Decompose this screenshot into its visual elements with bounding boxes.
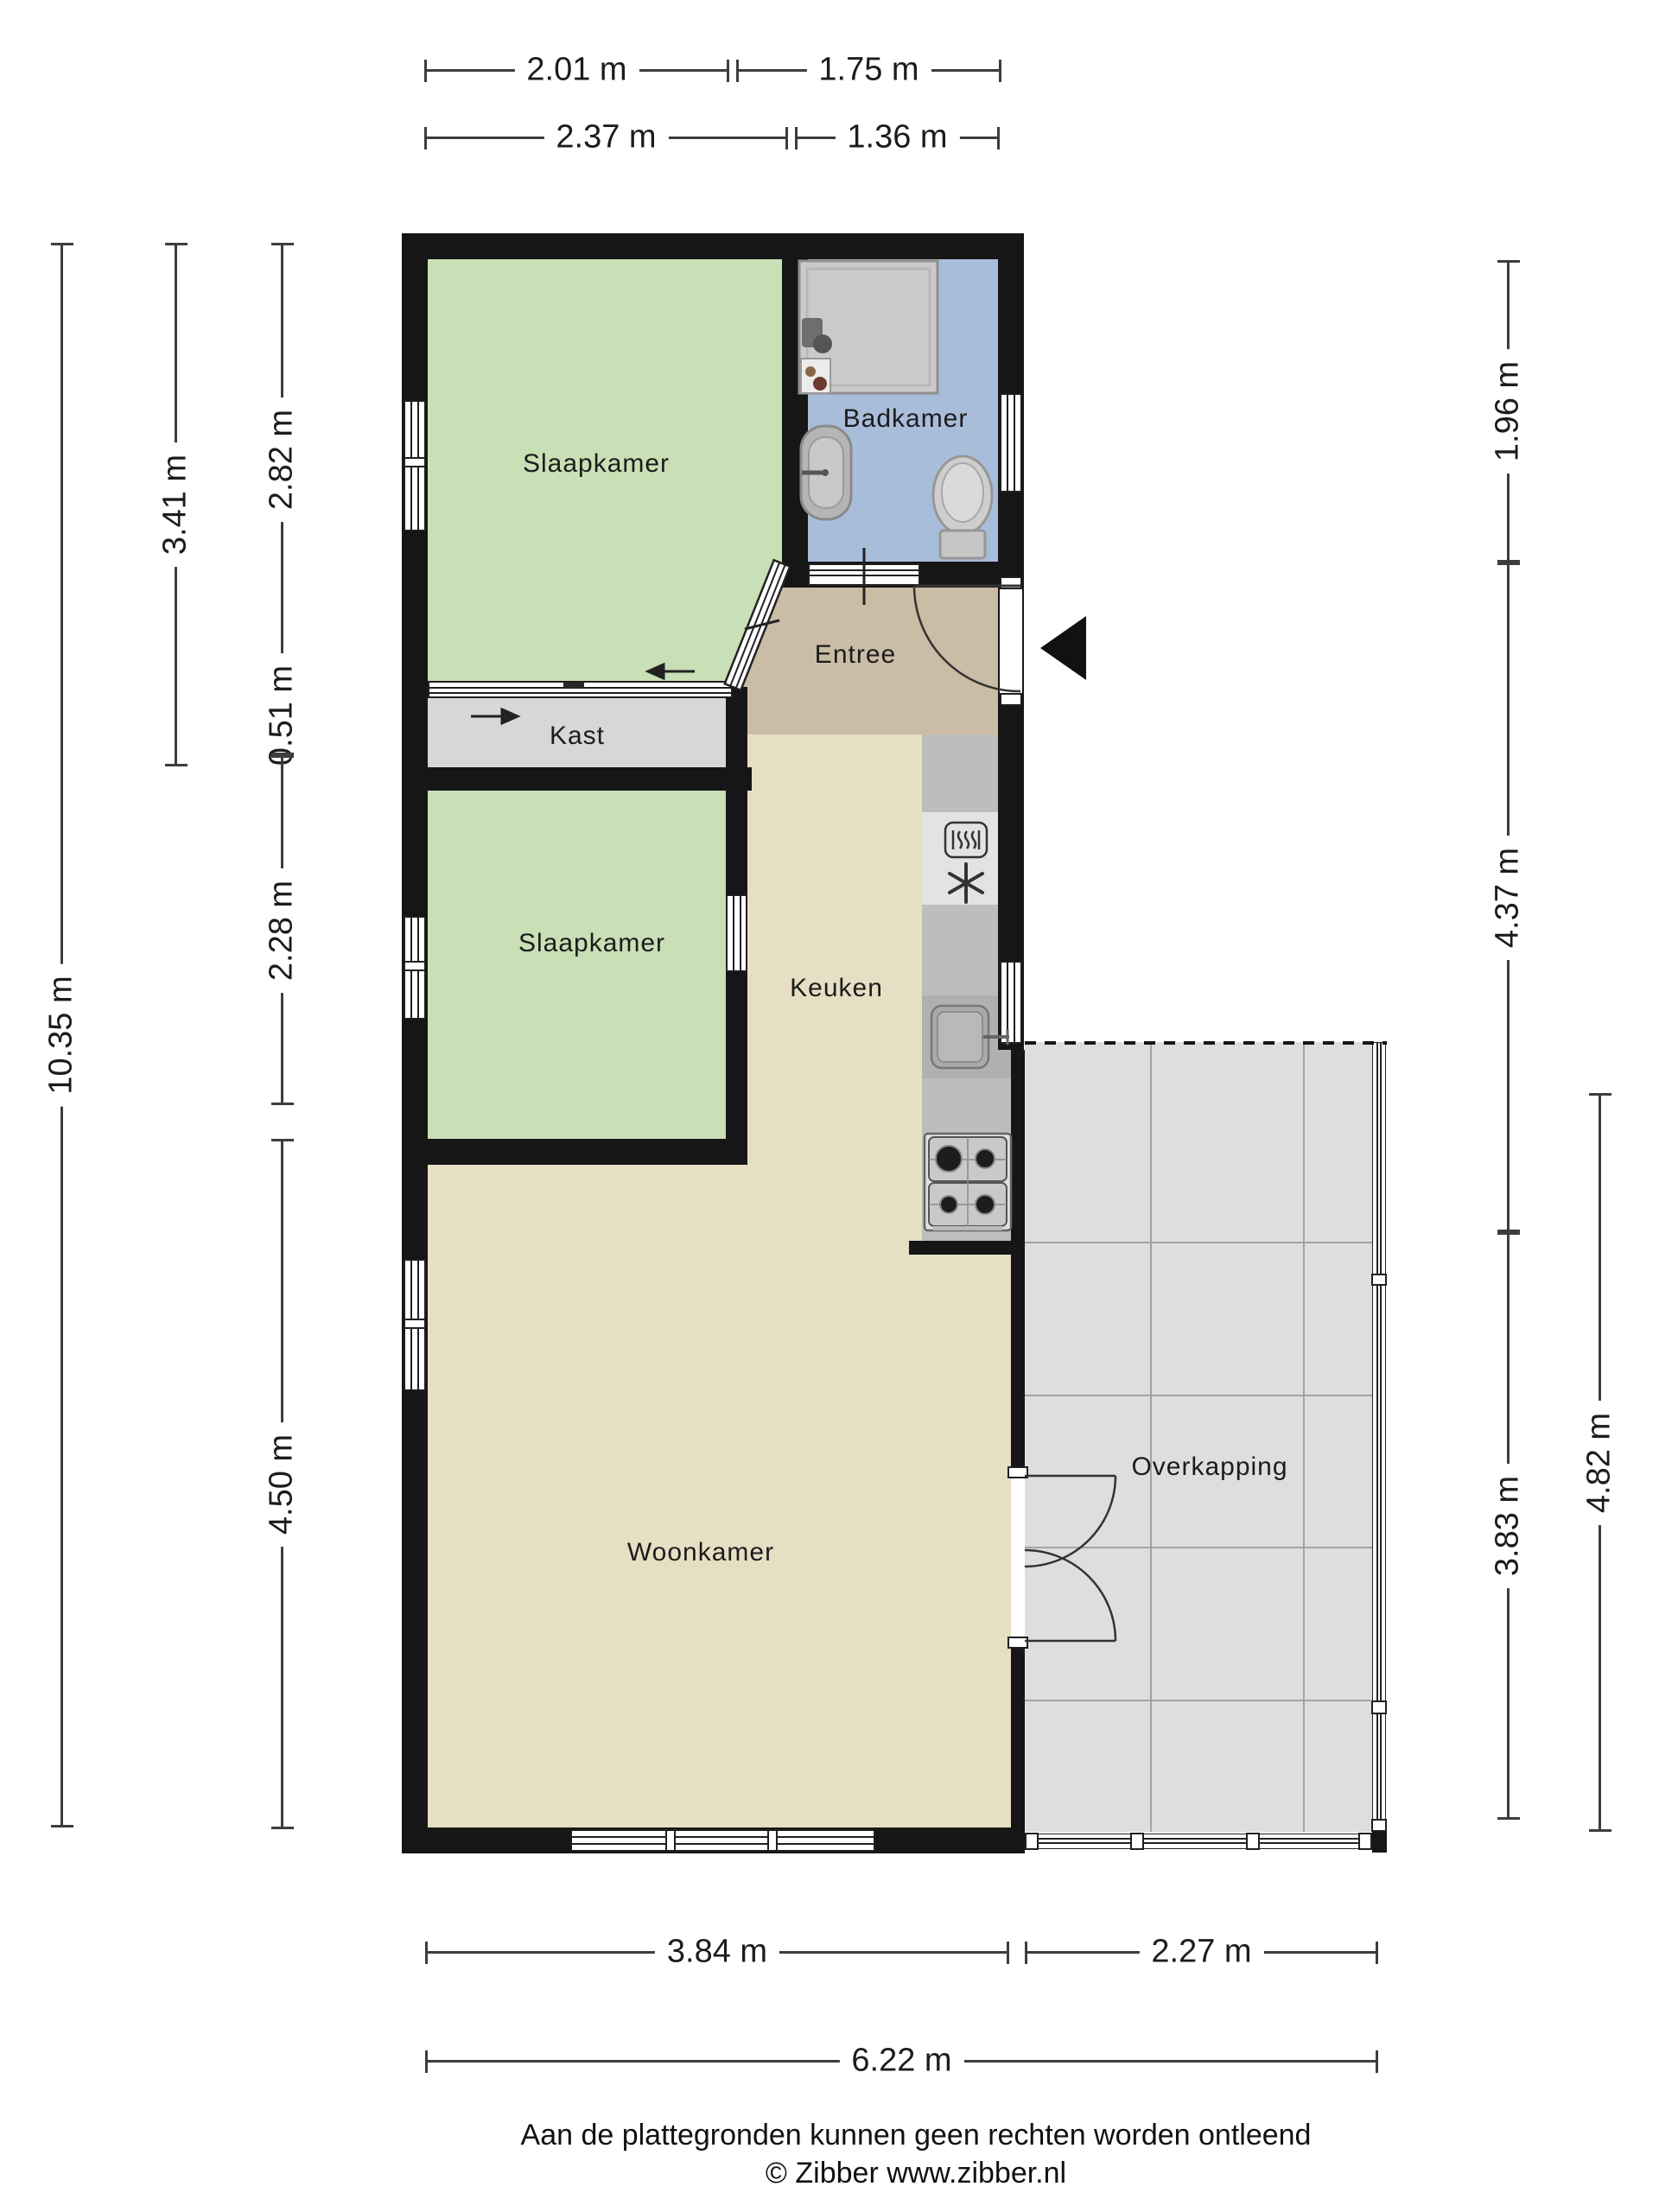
window-mullion (405, 961, 424, 971)
dimension-top-2b: 1.36 m (796, 137, 999, 139)
door-slaapkamer-2 (726, 894, 747, 972)
door-post (1000, 576, 1022, 589)
wall-right-lower (1011, 1050, 1025, 1853)
room-label-woonkamer: Woonkamer (627, 1538, 774, 1567)
window-slaapkamer-1 (404, 400, 426, 531)
door-double-opening (1011, 1466, 1025, 1649)
dimension-left-total: 10.35 m (60, 244, 63, 1827)
wall-kast-bottom (402, 767, 752, 791)
window-keuken (1000, 961, 1022, 1044)
disclaimer-text: Aan de plattegronden kunnen geen rechten… (173, 2119, 1659, 2152)
room-label-slaapkamer-1: Slaapkamer (523, 449, 670, 479)
wall-bed1-bath (782, 233, 808, 562)
dimension-left-228: 2.28 m (281, 756, 283, 1104)
window-woonkamer-bottom (570, 1829, 875, 1852)
room-woonkamer (428, 1165, 1011, 1827)
canopy-glass-divider (1371, 1819, 1387, 1832)
window-mullion (767, 1831, 778, 1850)
dimension-left-450: 4.50 m (281, 1140, 283, 1828)
window-badkamer (1000, 393, 1022, 493)
window-slaapkamer-2 (404, 916, 426, 1020)
dimension-left-341: 3.41 m (175, 244, 177, 766)
room-label-keuken: Keuken (790, 974, 883, 1003)
door-post (1000, 693, 1022, 706)
room-label-overkapping: Overkapping (1131, 1452, 1287, 1482)
dimension-bottom-1b: 2.27 m (1026, 1951, 1377, 1954)
wall-kitchen-stub (909, 1241, 1024, 1255)
dimension-right-196: 1.96 m (1507, 261, 1510, 562)
dimension-top-2a: 2.37 m (425, 137, 787, 139)
window-mullion (405, 1319, 424, 1329)
entrance-arrow-icon (1040, 616, 1086, 680)
copyright-text: © Zibber www.zibber.nl (173, 2157, 1659, 2190)
room-label-entree: Entree (815, 640, 896, 670)
dimension-left-051: 0.51 m (281, 677, 283, 754)
door-post (1007, 1466, 1028, 1478)
wall-top (402, 233, 1024, 259)
canopy-glass-divider (1358, 1833, 1372, 1850)
floor-plan-page: Slaapkamer Badkamer Entree Kast Slaapkam… (0, 0, 1659, 2212)
room-label-badkamer: Badkamer (843, 404, 969, 434)
wall-bed2-bottom (402, 1139, 747, 1165)
room-label-slaapkamer-2: Slaapkamer (518, 929, 665, 958)
canopy-glass-divider (1246, 1833, 1260, 1850)
canopy-corner-bottom-right (1372, 1832, 1387, 1853)
sliding-door-badkamer (808, 563, 920, 586)
window-woonkamer-left (404, 1259, 426, 1391)
sliding-door-handle (563, 683, 584, 688)
canopy-glass-divider (1371, 1274, 1387, 1286)
room-slaapkamer-2 (428, 791, 726, 1139)
canopy-glass-divider (1130, 1833, 1144, 1850)
canopy-glass-divider (1025, 1833, 1039, 1850)
dimension-right-437: 4.37 m (1507, 563, 1510, 1231)
window-mullion (665, 1831, 676, 1850)
door-entree-opening (1000, 576, 1022, 706)
dimension-left-282: 2.82 m (281, 244, 283, 675)
dimension-bottom-1a: 3.84 m (426, 1951, 1008, 1954)
door-post (1007, 1637, 1028, 1649)
room-overkapping (1025, 1042, 1372, 1832)
dimension-right-383: 3.83 m (1507, 1233, 1510, 1819)
window-mullion (405, 457, 424, 467)
canopy-glass-divider (1371, 1700, 1387, 1714)
dimension-bottom-total: 6.22 m (426, 2060, 1377, 2063)
dimension-right-482: 4.82 m (1599, 1094, 1601, 1831)
dimension-top-1b: 1.75 m (737, 69, 1001, 72)
canopy-glass-bottom (1025, 1834, 1372, 1849)
dimension-top-1a: 2.01 m (425, 69, 728, 72)
room-label-kast: Kast (550, 721, 605, 751)
